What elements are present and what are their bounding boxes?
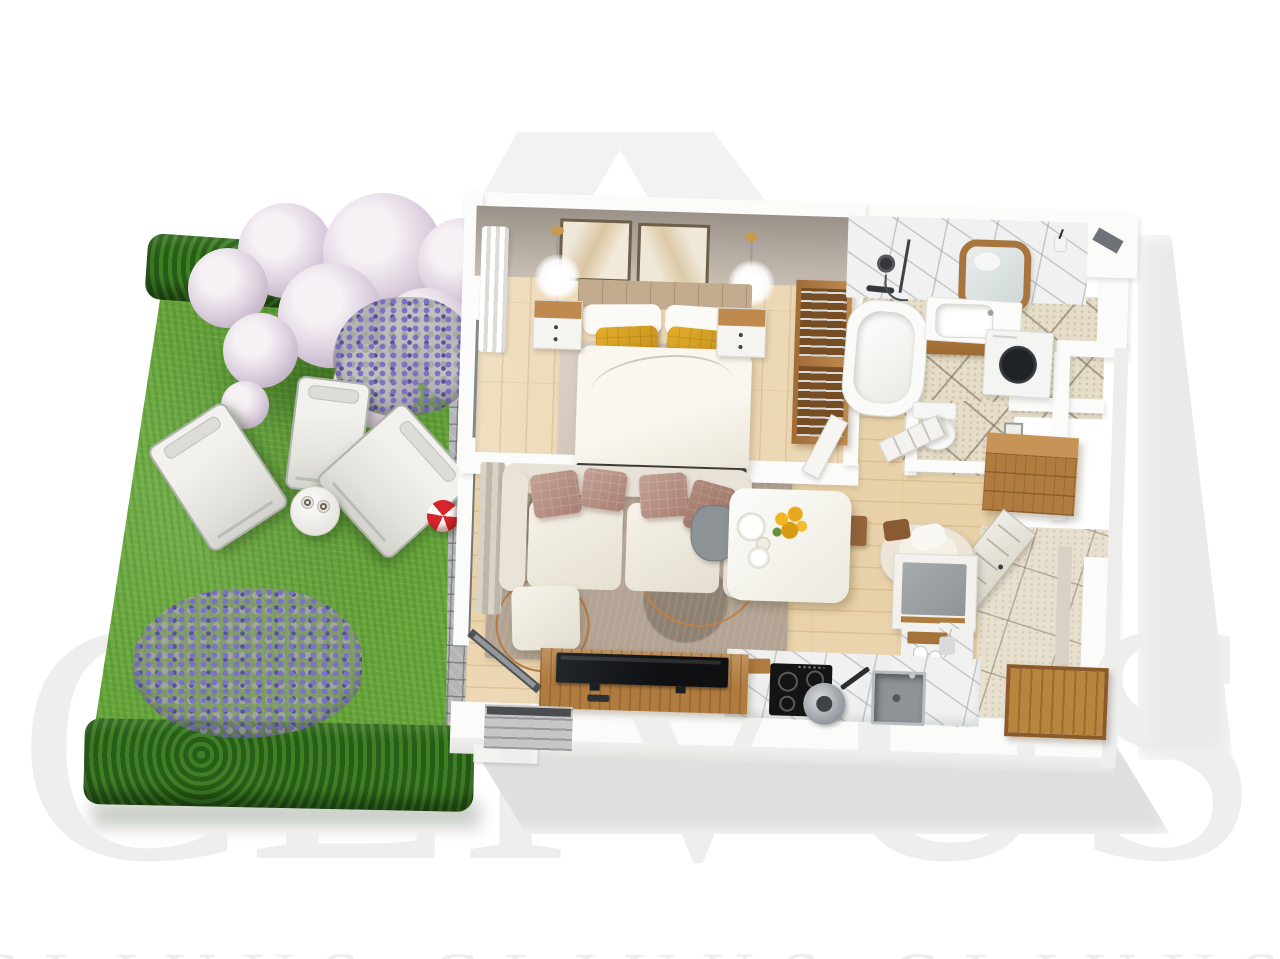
door-handle	[997, 564, 1004, 571]
hob-controls	[798, 666, 824, 669]
washing-machine	[982, 329, 1054, 399]
armchair-throw	[882, 518, 911, 542]
entry-bench-wood	[1004, 664, 1109, 740]
drawer-knob	[554, 337, 558, 341]
nightstand	[532, 300, 583, 351]
mirror-reflection	[974, 252, 1001, 271]
building-side-shadow	[1138, 235, 1233, 760]
lounger-headrest	[307, 384, 359, 404]
cabinet-gray-panel	[901, 562, 967, 616]
bed-duvet	[575, 345, 753, 474]
drawer-knob	[554, 325, 558, 329]
apartment	[437, 197, 1149, 795]
ottoman	[511, 585, 580, 650]
tv-screen	[556, 652, 729, 687]
nightstand	[716, 307, 767, 358]
sofa-throw-pillow	[638, 472, 689, 519]
door-track	[487, 706, 571, 717]
washer-door	[998, 345, 1038, 385]
coffee-machine	[939, 636, 956, 654]
drawer-knob	[739, 333, 743, 337]
wardrobe-hanger-section	[799, 288, 847, 357]
nightstand-wood-top	[534, 301, 582, 319]
tall-cabinet	[892, 553, 978, 632]
watermark-bottom-strip: CLIVUS CLIVUS CLIVUS CLIVUS CLIVUS CLIVU…	[0, 942, 1280, 959]
flower-bouquet	[768, 501, 811, 546]
drawer-knob	[738, 345, 742, 349]
terrace-step	[484, 704, 573, 751]
sink-drain	[892, 694, 900, 702]
nightstand-wood-top	[718, 308, 766, 326]
garden-side-table	[290, 486, 340, 536]
tree-blossom-cluster	[223, 313, 298, 388]
coffee-cup	[317, 500, 330, 513]
toilet-brush-cup	[1054, 236, 1067, 252]
coffee-cup	[301, 496, 314, 509]
bedroom-curtain	[478, 226, 509, 353]
duvet-fold	[589, 349, 736, 422]
washer-panel-line	[993, 335, 1017, 339]
sofa-arm	[499, 471, 529, 592]
sink-faucet	[909, 673, 915, 679]
pan-center	[816, 696, 832, 712]
sofa-throw-pillow	[529, 469, 583, 519]
lavender-bush	[132, 588, 362, 738]
remote-control	[587, 694, 609, 702]
burner-ring	[779, 695, 795, 711]
tv-foot	[676, 686, 686, 693]
kitchen-sink	[871, 670, 927, 726]
dresser-front	[982, 452, 1078, 516]
bathtub-basin	[851, 309, 916, 406]
floorplan-3d-render: CLIVUS CLIVUS CLIVUS CLIVUS CLIVUS CLIVU…	[0, 0, 1280, 959]
wall-art-frame	[636, 223, 710, 287]
tv-foot	[590, 683, 600, 690]
hallway-dresser	[982, 432, 1079, 516]
sofa-throw-pillow	[579, 467, 628, 513]
tv-highlight	[561, 656, 721, 665]
burner-ring	[778, 671, 799, 692]
